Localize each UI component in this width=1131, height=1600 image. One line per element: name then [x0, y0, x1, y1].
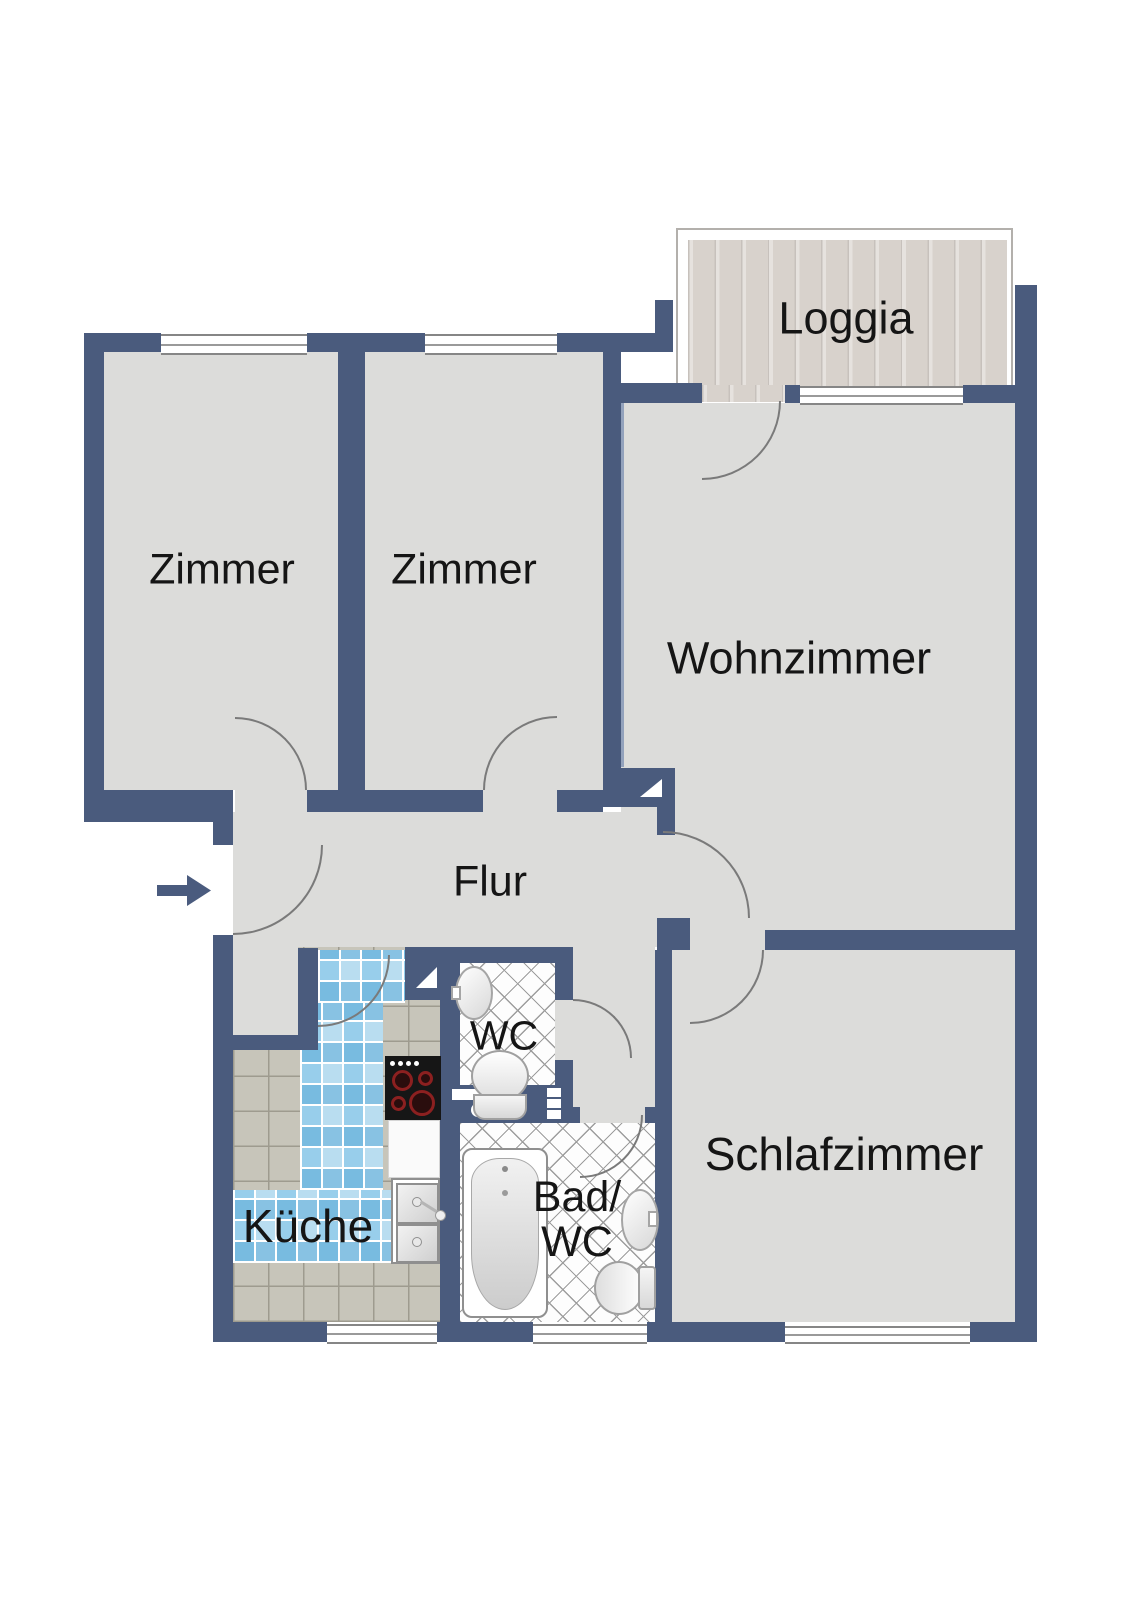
- shaft-symbol: [547, 1110, 561, 1119]
- loggia-door-threshold: [702, 385, 785, 402]
- window: [327, 1324, 437, 1344]
- wall: [655, 300, 673, 352]
- stove: [385, 1056, 441, 1120]
- wall: [647, 1322, 785, 1342]
- wall-marker-triangle: [640, 779, 662, 797]
- wall: [603, 383, 702, 403]
- room-label-bad-line1: Bad/: [533, 1175, 621, 1220]
- doorway: [555, 1000, 573, 1060]
- wall: [1015, 285, 1037, 1342]
- room-label-kueche: Küche: [243, 1202, 373, 1250]
- wall: [233, 1035, 318, 1050]
- window: [533, 1324, 647, 1344]
- window: [800, 386, 963, 405]
- doorway: [483, 790, 557, 812]
- kitchen-counter: [388, 1120, 440, 1178]
- room-label-flur: Flur: [453, 859, 527, 904]
- wall: [963, 385, 1015, 403]
- wall: [307, 790, 483, 812]
- wall: [437, 1322, 533, 1342]
- wall: [84, 333, 161, 352]
- room-label-bad-wc: Bad/ WC: [533, 1175, 621, 1265]
- faucet: [648, 1211, 658, 1227]
- shaft-symbol: [547, 1088, 561, 1097]
- floor-plan: Loggia Zimmer Zimmer Wohnzimmer Flur WC …: [0, 0, 1131, 1600]
- toilet-tank: [473, 1094, 527, 1120]
- shaft-symbol: [547, 1099, 561, 1108]
- wall: [603, 352, 621, 807]
- room-label-loggia: Loggia: [778, 294, 913, 341]
- faucet: [451, 986, 461, 1000]
- wall: [213, 935, 233, 1342]
- wall: [557, 333, 655, 352]
- wall-marker-triangle: [416, 967, 437, 988]
- entrance-arrow-icon: [155, 872, 213, 909]
- wall: [213, 822, 233, 845]
- wall-edge-line: [621, 403, 624, 767]
- room-label-schlafzimmer: Schlafzimmer: [705, 1130, 984, 1178]
- room-label-zimmer-1: Zimmer: [149, 547, 295, 592]
- wall: [657, 918, 690, 950]
- room-label-zimmer-2: Zimmer: [391, 547, 537, 592]
- window: [785, 1326, 970, 1344]
- doorway: [235, 790, 307, 812]
- wall: [970, 1322, 1037, 1342]
- wall: [573, 1107, 580, 1123]
- wall: [555, 947, 573, 1000]
- wall: [84, 352, 104, 822]
- wall: [785, 385, 800, 403]
- wall: [557, 790, 603, 812]
- room-label-wc: WC: [470, 1014, 538, 1057]
- wall: [765, 930, 1015, 950]
- wall: [307, 333, 425, 352]
- wall: [213, 1322, 327, 1342]
- doorway: [690, 930, 765, 950]
- wall: [338, 352, 365, 790]
- wall: [655, 950, 672, 1322]
- wall: [645, 1107, 655, 1123]
- window: [425, 334, 557, 355]
- toilet-tank: [638, 1266, 656, 1310]
- kitchen-double-sink: [391, 1178, 440, 1264]
- flur-nook: [233, 935, 298, 1035]
- window: [161, 334, 307, 355]
- toilet: [594, 1261, 644, 1315]
- room-label-wohnzimmer: Wohnzimmer: [667, 634, 931, 681]
- room-label-bad-line2: WC: [533, 1220, 621, 1265]
- wall: [84, 790, 233, 822]
